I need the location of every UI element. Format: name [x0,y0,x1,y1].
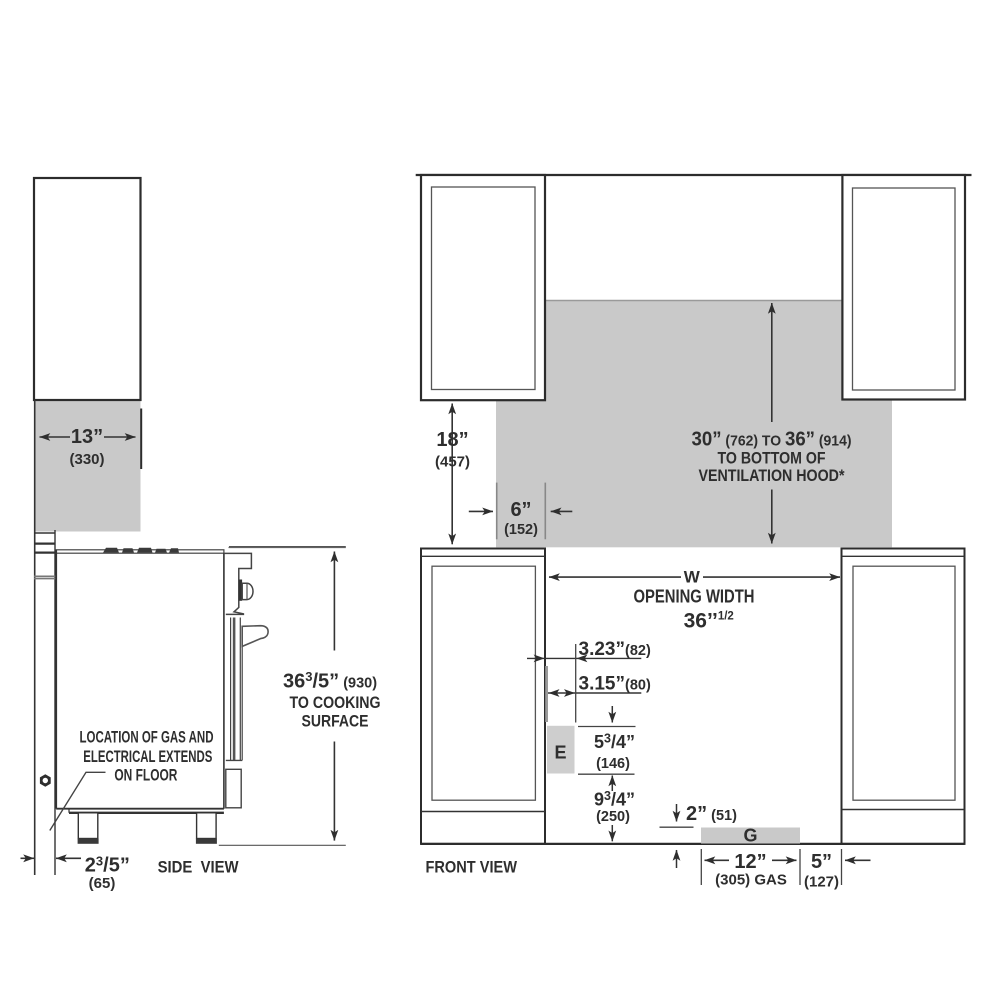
svg-text:53/4”: 53/4” [594,732,635,753]
svg-text:ELECTRICAL EXTENDS: ELECTRICAL EXTENDS [83,748,212,766]
svg-text:(152): (152) [504,522,538,538]
svg-text:TO COOKING: TO COOKING [290,693,381,712]
svg-text:(146): (146) [596,756,630,772]
svg-text:TO BOTTOM OF: TO BOTTOM OF [718,450,826,468]
svg-text:13”: 13” [71,426,103,448]
svg-text:(457): (457) [435,454,470,471]
svg-text:6”: 6” [510,499,531,521]
svg-text:23/5”: 23/5” [85,854,130,877]
svg-text:G: G [743,825,757,845]
svg-text:(65): (65) [89,875,116,892]
svg-text:3.23”(82): 3.23”(82) [579,639,651,660]
svg-text:FRONT VIEW: FRONT VIEW [426,859,518,877]
svg-text:LOCATION OF GAS AND: LOCATION OF GAS AND [80,729,214,747]
svg-text:18”: 18” [436,429,468,451]
svg-text:VENTILATION HOOD*: VENTILATION HOOD* [699,467,845,485]
svg-text:SURFACE: SURFACE [302,712,369,730]
svg-text:(127): (127) [804,874,839,891]
svg-text:W: W [684,568,701,587]
svg-text:(305) GAS: (305) GAS [715,872,787,889]
svg-text:E: E [554,743,566,763]
svg-text:30” (762) TO 36” (914): 30” (762) TO 36” (914) [692,428,852,450]
svg-text:5”: 5” [811,851,832,873]
svg-text:(330): (330) [69,451,104,468]
svg-text:3.15”(80): 3.15”(80) [579,674,651,695]
svg-text:(250): (250) [596,809,630,825]
svg-text:OPENING WIDTH: OPENING WIDTH [634,587,755,607]
svg-text:12”: 12” [734,851,766,873]
svg-text:ON FLOOR: ON FLOOR [114,766,177,784]
svg-text:SIDE VIEW: SIDE VIEW [158,859,239,877]
svg-text:93/4”: 93/4” [594,789,635,810]
